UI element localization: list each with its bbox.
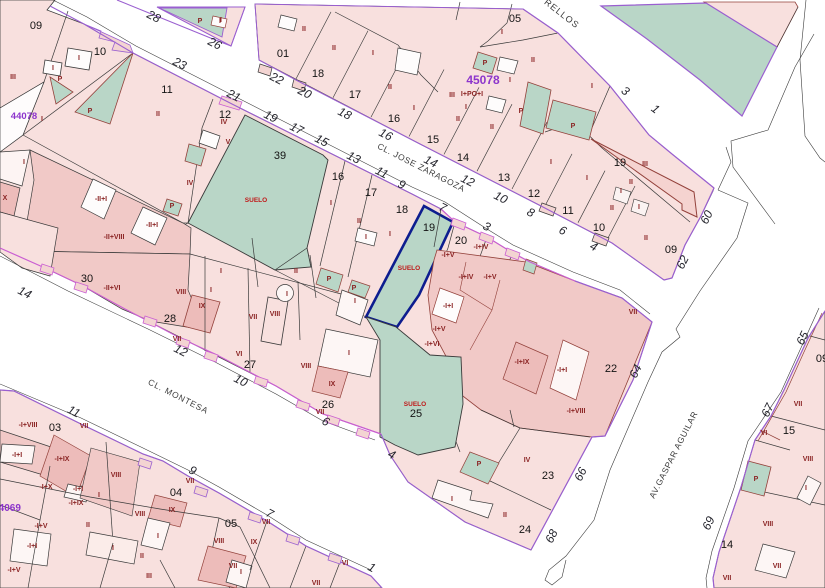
svg-text:I: I	[52, 65, 54, 72]
svg-text:IV: IV	[187, 180, 194, 187]
svg-text:P: P	[170, 203, 175, 210]
svg-text:-I+VI: -I+VI	[425, 341, 440, 348]
svg-text:I: I	[509, 77, 511, 84]
svg-text:VII: VII	[262, 519, 271, 526]
svg-text:VII: VII	[312, 580, 321, 587]
svg-text:VII: VII	[173, 336, 182, 343]
svg-text:I: I	[620, 188, 622, 195]
svg-text:I: I	[501, 29, 503, 36]
svg-text:IX: IX	[169, 507, 176, 514]
svg-text:VII: VII	[186, 478, 195, 485]
svg-text:I: I	[157, 533, 159, 540]
svg-text:II: II	[302, 26, 306, 33]
svg-text:16: 16	[332, 171, 344, 183]
svg-text:III: III	[146, 573, 152, 580]
svg-text:14: 14	[457, 152, 469, 164]
svg-text:I: I	[586, 175, 588, 182]
svg-text:P: P	[477, 461, 482, 468]
svg-text:-II+VIII: -II+VIII	[104, 234, 125, 241]
svg-text:09: 09	[665, 244, 677, 256]
svg-text:P: P	[571, 123, 576, 130]
svg-text:01: 01	[277, 48, 289, 60]
svg-text:-II+I: -II+I	[146, 222, 158, 229]
svg-text:VI: VI	[236, 351, 243, 358]
svg-text:II: II	[388, 84, 392, 91]
svg-text:-I+IV: -I+IV	[474, 244, 489, 251]
svg-text:II: II	[357, 218, 361, 225]
svg-text:24: 24	[519, 524, 531, 536]
svg-text:19: 19	[614, 157, 626, 169]
svg-text:VIII: VIII	[301, 363, 312, 370]
svg-text:II: II	[140, 553, 144, 560]
svg-text:I: I	[41, 116, 43, 123]
svg-text:20: 20	[455, 235, 467, 247]
svg-text:I: I	[240, 569, 242, 576]
svg-text:II: II	[629, 179, 633, 186]
svg-text:I: I	[465, 104, 467, 111]
svg-text:II: II	[294, 268, 298, 275]
svg-text:11: 11	[161, 84, 172, 96]
svg-text:I: I	[210, 287, 212, 294]
svg-text:22: 22	[605, 363, 617, 375]
svg-text:II: II	[610, 205, 614, 212]
svg-text:25: 25	[410, 408, 422, 420]
svg-text:VIII: VIII	[803, 456, 814, 463]
svg-text:VI: VI	[761, 430, 768, 437]
svg-text:II: II	[456, 116, 460, 123]
svg-text:19: 19	[423, 222, 435, 234]
svg-text:I+PO+I: I+PO+I	[461, 91, 483, 98]
svg-text:III: III	[642, 161, 648, 168]
svg-text:II: II	[86, 522, 90, 529]
svg-text:VII: VII	[723, 575, 732, 582]
svg-text:VII: VII	[794, 401, 803, 408]
svg-text:14: 14	[721, 539, 733, 551]
svg-text:17: 17	[349, 89, 361, 101]
svg-text:10: 10	[94, 46, 106, 58]
svg-text:30: 30	[81, 273, 93, 285]
svg-text:IX: IX	[199, 303, 206, 310]
svg-text:II: II	[490, 124, 494, 131]
svg-text:-I+IX: -I+IX	[55, 456, 70, 463]
svg-text:VII: VII	[249, 314, 258, 321]
svg-text:I: I	[78, 55, 80, 62]
svg-text:-I+V: -I+V	[432, 326, 445, 333]
svg-text:III: III	[10, 74, 16, 81]
svg-text:-II+I: -II+I	[95, 196, 107, 203]
svg-text:II: II	[644, 235, 648, 242]
svg-text:15: 15	[427, 134, 439, 146]
svg-text:09: 09	[816, 353, 825, 365]
svg-text:I: I	[365, 234, 367, 241]
svg-text:SUELO: SUELO	[398, 265, 420, 272]
svg-text:17: 17	[365, 187, 377, 199]
svg-text:18: 18	[312, 68, 324, 80]
svg-text:I: I	[550, 159, 552, 166]
svg-text:VII: VII	[629, 309, 638, 316]
svg-text:X: X	[3, 195, 8, 202]
svg-text:I: I	[23, 159, 25, 166]
svg-text:23: 23	[542, 470, 554, 482]
svg-text:IV: IV	[524, 457, 531, 464]
svg-text:18: 18	[396, 204, 408, 216]
svg-text:I: I	[591, 83, 593, 90]
svg-text:04: 04	[170, 487, 182, 499]
svg-text:II: II	[156, 111, 160, 118]
svg-text:I: I	[286, 291, 288, 298]
svg-text:VII: VII	[80, 423, 89, 430]
svg-text:P: P	[352, 285, 357, 292]
svg-text:-I+X: -I+X	[39, 484, 52, 491]
svg-text:IX: IX	[251, 539, 258, 546]
svg-text:44069: 44069	[0, 503, 21, 514]
svg-text:I: I	[413, 105, 415, 112]
svg-text:10: 10	[593, 222, 605, 234]
svg-text:-I+V: -I+V	[7, 567, 20, 574]
svg-text:P: P	[88, 108, 93, 115]
svg-text:-I+IX: -I+IX	[515, 359, 530, 366]
svg-text:03: 03	[49, 422, 61, 434]
svg-text:09: 09	[30, 20, 42, 32]
svg-text:I: I	[98, 492, 100, 499]
svg-text:IV: IV	[221, 119, 228, 126]
svg-text:SUELO: SUELO	[245, 197, 267, 204]
svg-text:VII: VII	[773, 563, 782, 570]
svg-text:28: 28	[164, 313, 176, 325]
svg-text:16: 16	[388, 113, 400, 125]
svg-text:VIII: VIII	[270, 311, 281, 318]
svg-text:-I+I: -I+I	[557, 367, 567, 374]
svg-text:I: I	[112, 545, 114, 552]
svg-text:-I+VIII: -I+VIII	[19, 422, 38, 429]
svg-text:-II+VI: -II+VI	[104, 285, 121, 292]
svg-text:II: II	[531, 57, 535, 64]
svg-text:P: P	[327, 276, 332, 283]
svg-text:-I+V: -I+V	[483, 274, 496, 281]
svg-text:-I+IX: -I+IX	[69, 500, 84, 507]
svg-text:VIII: VIII	[763, 521, 774, 528]
svg-text:I: I	[219, 18, 221, 25]
svg-text:I: I	[372, 50, 374, 57]
svg-text:VIII: VIII	[111, 472, 122, 479]
svg-text:45078: 45078	[466, 73, 500, 87]
svg-text:-I+V: -I+V	[441, 252, 454, 259]
svg-text:I: I	[451, 496, 453, 503]
svg-text:I: I	[348, 350, 350, 357]
svg-text:13: 13	[498, 172, 510, 184]
svg-text:II: II	[503, 512, 507, 519]
svg-text:44078: 44078	[11, 111, 37, 122]
svg-text:VIII: VIII	[176, 289, 187, 296]
svg-text:I: I	[389, 231, 391, 238]
svg-text:V: V	[226, 139, 231, 146]
svg-text:27: 27	[244, 359, 256, 371]
svg-text:II: II	[332, 45, 336, 52]
svg-text:VII: VII	[316, 409, 325, 416]
svg-text:I: I	[638, 204, 640, 211]
svg-text:P: P	[519, 108, 524, 115]
svg-text:VI: VI	[342, 560, 349, 567]
svg-text:-I+I: -I+I	[27, 543, 37, 550]
svg-text:I: I	[220, 268, 222, 275]
svg-text:11: 11	[562, 205, 573, 217]
svg-text:05: 05	[225, 518, 237, 530]
svg-text:P: P	[754, 476, 759, 483]
svg-text:-I+V: -I+V	[34, 523, 47, 530]
svg-text:-I+I: -I+I	[443, 303, 453, 310]
svg-text:VIII: VIII	[214, 538, 225, 545]
svg-text:05: 05	[509, 13, 521, 25]
svg-text:P: P	[58, 76, 63, 83]
svg-text:VIII: VIII	[135, 511, 146, 518]
svg-text:P: P	[483, 60, 488, 67]
svg-text:VII: VII	[229, 563, 238, 570]
svg-text:III: III	[449, 92, 455, 99]
svg-text:SUELO: SUELO	[404, 401, 426, 408]
svg-text:-I+I: -I+I	[12, 452, 22, 459]
svg-text:-I+IV: -I+IV	[459, 274, 474, 281]
svg-text:I: I	[354, 298, 356, 305]
svg-text:P: P	[198, 18, 203, 25]
svg-text:I: I	[805, 485, 807, 492]
svg-text:15: 15	[783, 425, 795, 437]
svg-text:IX: IX	[329, 381, 336, 388]
svg-text:12: 12	[528, 188, 540, 200]
svg-text:-I+I: -I+I	[73, 486, 83, 493]
svg-text:I: I	[330, 200, 332, 207]
svg-text:-I+VIII: -I+VIII	[567, 408, 586, 415]
svg-text:39: 39	[274, 150, 286, 162]
